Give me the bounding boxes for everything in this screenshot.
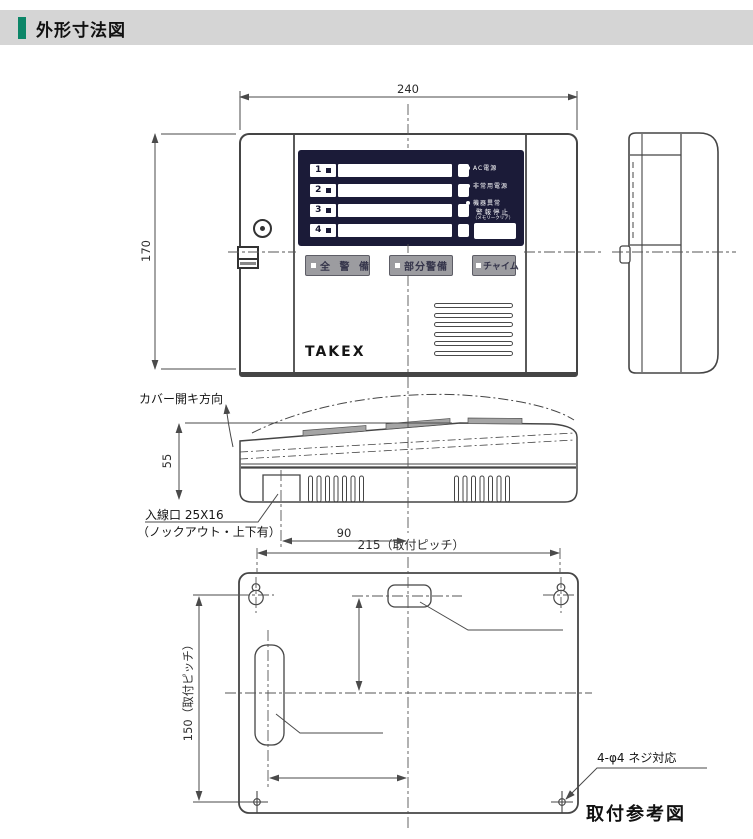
keyhole-left: [249, 584, 263, 605]
led-ac-power: AC電源: [466, 163, 524, 172]
vent-slots: [309, 476, 510, 502]
zone-indicator: [326, 208, 331, 213]
catalog-dimension-page: 外形寸法図 1 2 3 4: [0, 0, 753, 839]
mount-plate-view: [239, 573, 578, 813]
grille-slot: [434, 332, 513, 337]
page-title: 外形寸法図: [36, 16, 126, 41]
dim-69-label: 69: [341, 637, 355, 652]
zone-label-strip: [338, 184, 452, 197]
zone-indicator: [326, 168, 331, 173]
keyhole-right: [554, 584, 568, 605]
zone-number: 3: [315, 206, 321, 215]
led-dot-icon: [466, 166, 470, 170]
dim-55-label: 55: [160, 454, 174, 469]
side-view: [620, 133, 718, 373]
button-full-guard: 全 警 備: [305, 255, 370, 276]
zone-number: 4: [315, 226, 321, 235]
zone-number-box: 4: [310, 224, 336, 237]
inlet-30x15-note: （ノックアウト）: [467, 632, 563, 649]
takex-logo: TAKEX: [305, 344, 366, 360]
screw-hole-left: [246, 791, 268, 813]
zone-number-box: 3: [310, 204, 336, 217]
zone-label-strip: [338, 164, 452, 177]
inlet-20x70-label: 入線口 20X70: [302, 714, 381, 731]
zone-indicator: [326, 188, 331, 193]
button-indicator: [476, 263, 481, 268]
dim-240-label: 240: [388, 82, 428, 96]
cover-open-arrow: [226, 405, 233, 447]
profile-inlet-knockout: [263, 475, 300, 501]
zone-label-strip: [338, 204, 452, 217]
button-chime: チャイム: [472, 255, 516, 276]
screw-hole-right: [551, 791, 573, 813]
dim-99-label: 99: [317, 761, 357, 775]
side-latch-bump: [620, 246, 630, 263]
key-cylinder: [253, 219, 272, 238]
hinge-strip: [468, 418, 522, 424]
button-partial-guard: 部分警備: [389, 255, 453, 276]
front-left-seam: [293, 135, 295, 372]
cover-open-direction-label: カバー開キ方向: [139, 390, 223, 407]
zone-label-strip: [338, 224, 452, 237]
button-indicator: [311, 263, 316, 268]
header-accent-bar: [18, 17, 26, 39]
grille-slot: [434, 303, 513, 308]
grille-slot: [434, 322, 513, 327]
zone-number-box: 1: [310, 164, 336, 177]
memory-clear-label: （メモリークリア）: [458, 215, 528, 221]
dim-215-label: 215（取付ピッチ）: [341, 536, 481, 553]
led-backup-power: 非常用電源: [466, 181, 524, 190]
grille-slot: [434, 341, 513, 346]
inlet-knockout-30x15: [388, 585, 431, 607]
key-dot-icon: [260, 226, 265, 231]
inlet-25x16-note: （ノックアウト・上下有）: [137, 523, 281, 540]
dim-170-label: 170: [139, 240, 153, 262]
cover-open-outline: [252, 394, 574, 433]
front-view-case: 1 2 3 4 AC電源 非常用電源 機器異常: [239, 133, 578, 377]
mount-reference-caption: 取付参考図: [586, 800, 686, 826]
alarm-stop-button: [474, 223, 516, 239]
section-header: 外形寸法図: [0, 10, 753, 45]
hinge-strip: [303, 426, 366, 437]
profile-view: [226, 394, 577, 502]
front-right-seam: [525, 135, 527, 372]
inlet-30x15-label: 入線口 30X15: [470, 613, 549, 630]
inlet-slot-20x70: [255, 645, 284, 745]
profile-body: [240, 423, 577, 502]
hinge-strip: [386, 419, 450, 430]
zone-number: 1: [315, 166, 321, 175]
mount-plate: [239, 573, 578, 813]
screw-size-label: 4-φ4 ネジ対応: [597, 749, 676, 766]
led-dot-icon: [466, 201, 470, 205]
grille-slot: [434, 351, 513, 356]
zone-indicator: [326, 228, 331, 233]
dim-150-label: 150（取付ピッチ）: [180, 639, 196, 741]
display-panel: 1 2 3 4 AC電源 非常用電源 機器異常: [298, 150, 524, 246]
zone-button: [458, 224, 469, 237]
grille-slot: [434, 313, 513, 318]
led-dot-icon: [466, 184, 470, 188]
cover-latch: [237, 246, 259, 269]
inlet-25x16-label: 入線口 25X16: [145, 506, 224, 523]
zone-number-box: 2: [310, 184, 336, 197]
button-indicator: [395, 263, 400, 268]
zone-number: 2: [315, 186, 321, 195]
